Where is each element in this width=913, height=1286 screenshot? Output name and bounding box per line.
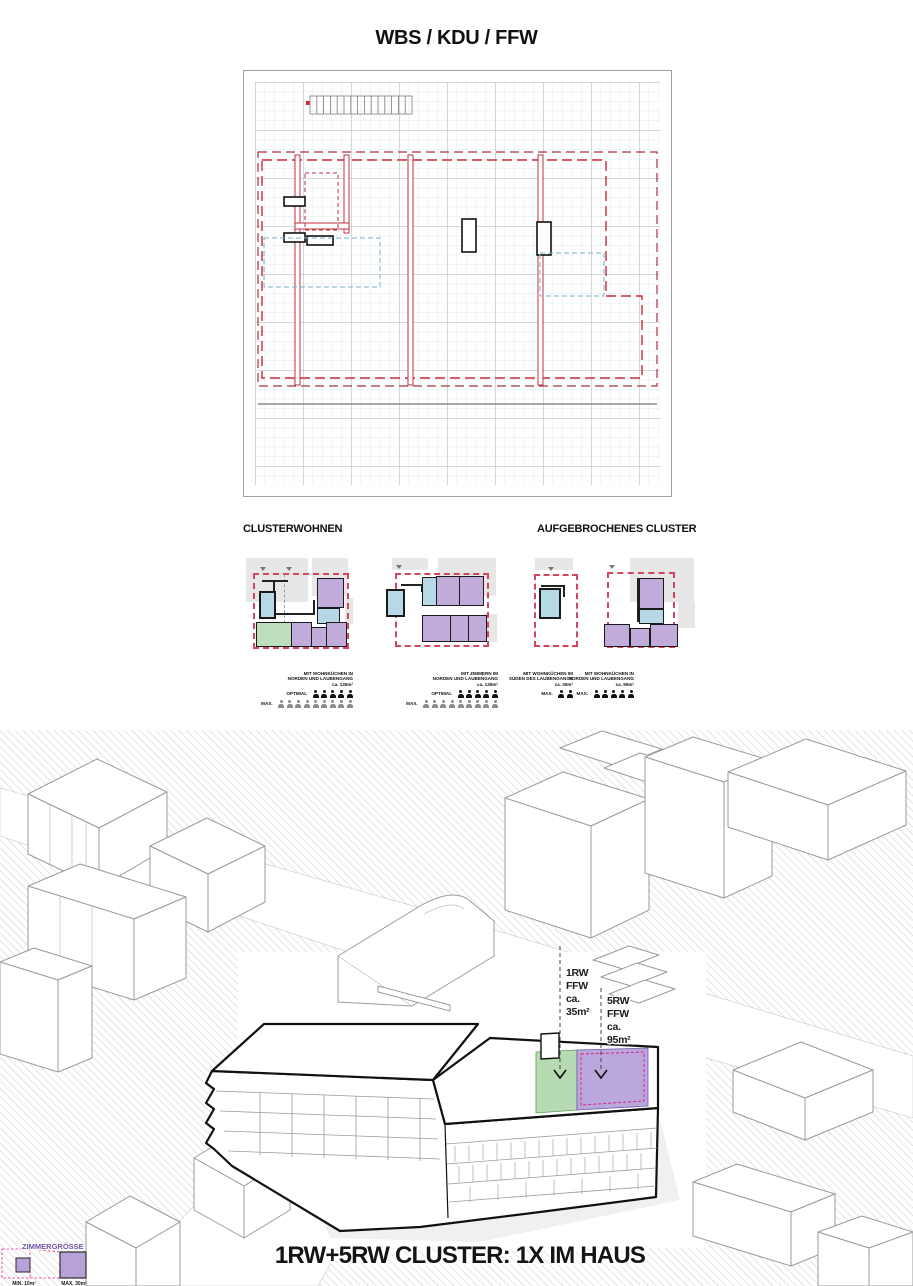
poster-page: WBS / KDU / FFW <box>0 0 913 1286</box>
room-bath <box>386 589 405 617</box>
legend-max-square <box>60 1252 86 1278</box>
room-purple <box>317 578 344 608</box>
cluster-diagram-4 <box>602 556 695 666</box>
entry-arrow-icon <box>548 567 554 571</box>
person-icon <box>492 700 498 708</box>
person-icon <box>330 690 336 698</box>
person-icon <box>287 700 293 708</box>
max-occupancy-row: MAX. <box>384 700 498 708</box>
entry-arrow-icon <box>609 565 615 569</box>
room-bath <box>259 591 276 619</box>
legend-max-label: MAX. 30m² <box>61 1281 87 1286</box>
room-bath <box>422 577 437 606</box>
person-icon <box>628 690 634 698</box>
room-purple <box>459 576 484 606</box>
stair-red-tick <box>306 101 310 105</box>
person-icon <box>492 690 498 698</box>
cluster-notes-2: MIT ZIMMERN IM NORDEN UND LAUBENGANG ca.… <box>384 671 498 708</box>
wall <box>262 580 288 582</box>
page-title: WBS / KDU / FFW <box>0 27 913 50</box>
optimal-label: OPTIMAL <box>431 690 452 698</box>
label-1rw-line: 1RW <box>566 967 589 979</box>
person-icons <box>421 700 498 708</box>
person-icon <box>278 700 284 708</box>
label-1rw-line: 35m² <box>566 1006 590 1018</box>
person-icon <box>313 700 319 708</box>
max-label: MAX. <box>261 700 272 708</box>
room-bath <box>639 609 664 624</box>
note-text: ca. 95m² <box>547 682 634 687</box>
axon-caption: 1RW+5RW CLUSTER: 1X IM HAUS <box>275 1242 646 1269</box>
label-1rw-line: ca. <box>566 993 580 1005</box>
unit-5rw-purple <box>577 1048 648 1110</box>
room-purple <box>639 578 664 609</box>
person-icon <box>330 700 336 708</box>
shade-patch <box>678 602 695 628</box>
person-icon <box>440 700 446 708</box>
heading-aufgebrochenes-cluster: AUFGEBROCHENES CLUSTER <box>537 523 696 535</box>
room-purple <box>422 615 451 642</box>
note-text: ca. 135m² <box>240 682 353 687</box>
optimal-label: OPTIMAL <box>286 690 307 698</box>
person-icon <box>449 700 455 708</box>
person-icon <box>466 690 472 698</box>
person-icon <box>475 690 481 698</box>
person-icons <box>591 690 634 698</box>
person-icon <box>321 690 327 698</box>
note-text: ca. 135m² <box>384 682 498 687</box>
cluster-diagram-1 <box>240 556 353 666</box>
person-icon <box>611 690 617 698</box>
room-purple <box>311 627 327 647</box>
entry-arrow-icon <box>260 567 266 571</box>
label-5rw-line: 5RW <box>607 995 630 1007</box>
cluster-notes-1: MIT WOHNKÜCHEN IN NORDEN UND LAUBENGANG … <box>240 671 353 708</box>
optimal-occupancy-row: OPTIMAL <box>384 690 498 698</box>
entry-arrow-icon <box>286 567 292 571</box>
entry-arrow-icon <box>396 565 402 569</box>
room-purple <box>630 628 650 647</box>
person-icon <box>466 700 472 708</box>
roof-access-box <box>541 1033 559 1059</box>
person-icon <box>432 700 438 708</box>
person-icon <box>475 700 481 708</box>
legend-min-square <box>16 1258 30 1272</box>
room-purple <box>604 624 630 647</box>
person-icon <box>594 690 600 698</box>
optimal-occupancy-row: OPTIMAL <box>240 690 353 698</box>
context-building <box>0 962 58 1072</box>
room-bath <box>539 588 561 619</box>
wall <box>563 585 565 597</box>
person-icon <box>602 690 608 698</box>
room-purple <box>436 576 460 606</box>
room-purple <box>650 624 678 647</box>
cluster-diagram-2 <box>384 556 498 666</box>
person-icons <box>455 690 498 698</box>
person-icon <box>619 690 625 698</box>
wall <box>273 613 315 615</box>
room-green <box>256 622 292 647</box>
cluster-notes-4: MIT WOHNKÜCHEN IN NORDEN UND LAUBENGANG … <box>547 671 634 698</box>
shade-patch <box>535 558 573 570</box>
person-icon <box>338 700 344 708</box>
plan-large-grid <box>255 82 660 485</box>
person-icon <box>458 690 464 698</box>
legend-min-label: MIN. 10m² <box>12 1281 36 1286</box>
legend-title: ZIMMERGRÖSSE <box>22 1242 84 1251</box>
person-icon <box>313 690 319 698</box>
person-icon <box>347 700 353 708</box>
person-icon <box>458 700 464 708</box>
axonometric-site-view: 1RW FFW ca. 35m² 5RW FFW ca. 95m² 1RW+5R… <box>0 730 913 1286</box>
person-icon <box>423 700 429 708</box>
person-icon <box>295 700 301 708</box>
room-purple <box>468 615 487 642</box>
max-label: MAX. <box>406 700 417 708</box>
person-icon <box>321 700 327 708</box>
context-building <box>645 757 724 898</box>
wall <box>401 584 423 586</box>
label-5rw-line: ca. <box>607 1021 621 1033</box>
max-label: MAX. <box>577 690 588 698</box>
person-icon <box>483 690 489 698</box>
person-icons <box>276 700 353 708</box>
max-occupancy-row: MAX. <box>547 690 634 698</box>
label-5rw-line: 95m² <box>607 1034 631 1046</box>
wall <box>541 585 565 587</box>
person-icon <box>483 700 489 708</box>
context-building <box>58 966 92 1072</box>
person-icon <box>338 690 344 698</box>
wall <box>313 600 315 615</box>
grid-floor-plan <box>243 70 672 497</box>
person-icons <box>310 690 353 698</box>
label-1rw-line: FFW <box>566 980 588 992</box>
room-purple <box>291 622 312 647</box>
person-icon <box>347 690 353 698</box>
heading-clusterwohnen: CLUSTERWOHNEN <box>243 523 342 535</box>
cluster-diagram-3 <box>527 556 585 666</box>
max-occupancy-row: MAX. <box>240 700 353 708</box>
person-icon <box>304 700 310 708</box>
label-5rw-line: FFW <box>607 1008 629 1020</box>
room-purple <box>450 615 469 642</box>
room-purple <box>326 622 347 647</box>
